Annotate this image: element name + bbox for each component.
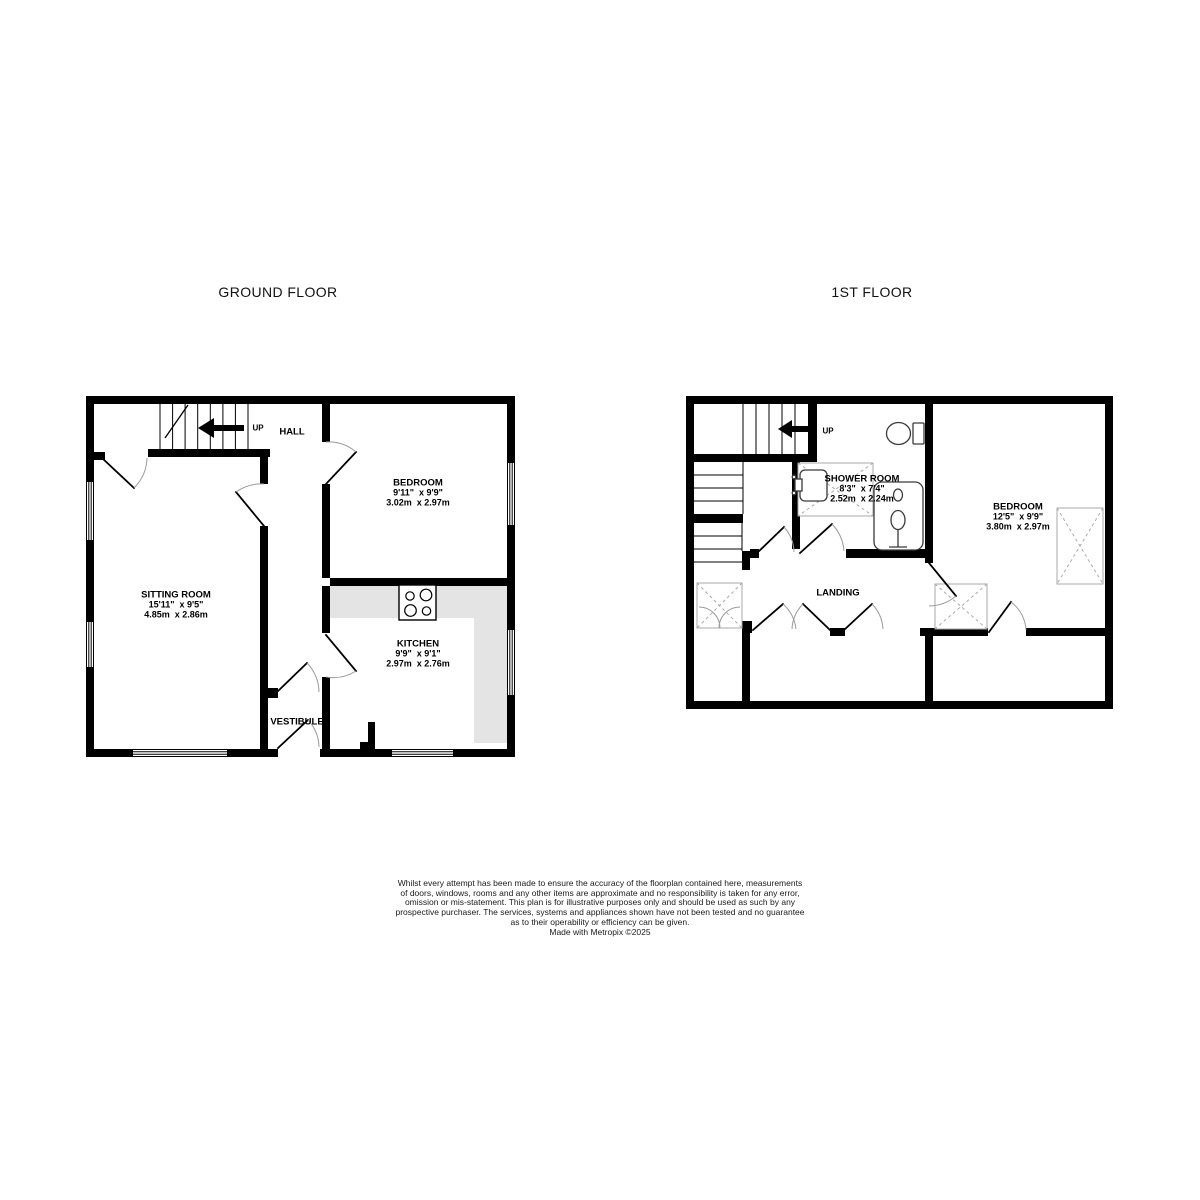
door-landing-left (753, 604, 796, 630)
kitchen-label: KITCHEN 9'9" x 9'1" 2.97m x 2.76m (386, 640, 450, 669)
disclaimer: Whilst every attempt has been made to en… (240, 879, 960, 937)
window (507, 630, 515, 695)
ground-interior-walls (94, 404, 507, 749)
landing-cupboard (697, 583, 742, 628)
landing-label: LANDING (816, 588, 859, 599)
ground-floor-plan: UP HALL VESTIBULE BEDROOM 9'11" x 9'9" 3… (86, 396, 515, 757)
wardrobe-box (935, 584, 987, 629)
hall-label: HALL (279, 427, 304, 438)
door-shower-room (800, 524, 844, 553)
window (133, 749, 227, 757)
disclaimer-line: Made with Metropix ©2025 (240, 928, 960, 938)
door-vestibule (276, 663, 319, 693)
vestibule-label: VESTIBULE (270, 717, 323, 728)
door-bedroom-rear (989, 602, 1026, 632)
shower-room-label: SHOWER ROOM 8'3" x 7'4" 2.52m x 2.24m (825, 475, 900, 504)
hob-icon (399, 585, 436, 620)
door-bedroom (326, 442, 356, 484)
door-landing-right (844, 604, 883, 630)
first-floor-plan: UP LANDING SHOWER ROOM 8'3" x 7'4" 2.52m… (686, 396, 1113, 709)
window (507, 463, 515, 525)
sitting-room-label: SITTING ROOM 15'11" x 9'5" 4.85m x 2.86m (141, 591, 211, 620)
ground-bedroom-label: BEDROOM 9'11" x 9'9" 3.02m x 2.97m (386, 479, 450, 508)
front-door-opening (278, 749, 320, 757)
ground-floor-drawing (86, 396, 515, 757)
door-stairs-exit (756, 527, 794, 554)
ground-floor-title: GROUND FLOOR (218, 284, 337, 300)
door-sitting-room (102, 458, 147, 488)
first-up-label: UP (822, 427, 833, 436)
floorplan-page: GROUND FLOOR 1ST FLOOR (0, 0, 1200, 1200)
toilet-icon (887, 423, 925, 445)
door-landing-middle (792, 604, 830, 630)
first-bedroom-label: BEDROOM 12'5" x 9'9" 3.80m x 2.97m (986, 503, 1050, 532)
window (86, 482, 94, 540)
first-floor-drawing (686, 396, 1113, 709)
ground-up-label: UP (252, 424, 263, 433)
window (86, 622, 94, 667)
wardrobe-box (1057, 508, 1103, 584)
window (392, 749, 453, 757)
stairs-up-arrow-icon (198, 418, 244, 438)
door-hall-sitting (236, 484, 264, 526)
staircase (694, 404, 795, 562)
door-kitchen (326, 635, 356, 678)
first-floor-title: 1ST FLOOR (831, 284, 912, 300)
